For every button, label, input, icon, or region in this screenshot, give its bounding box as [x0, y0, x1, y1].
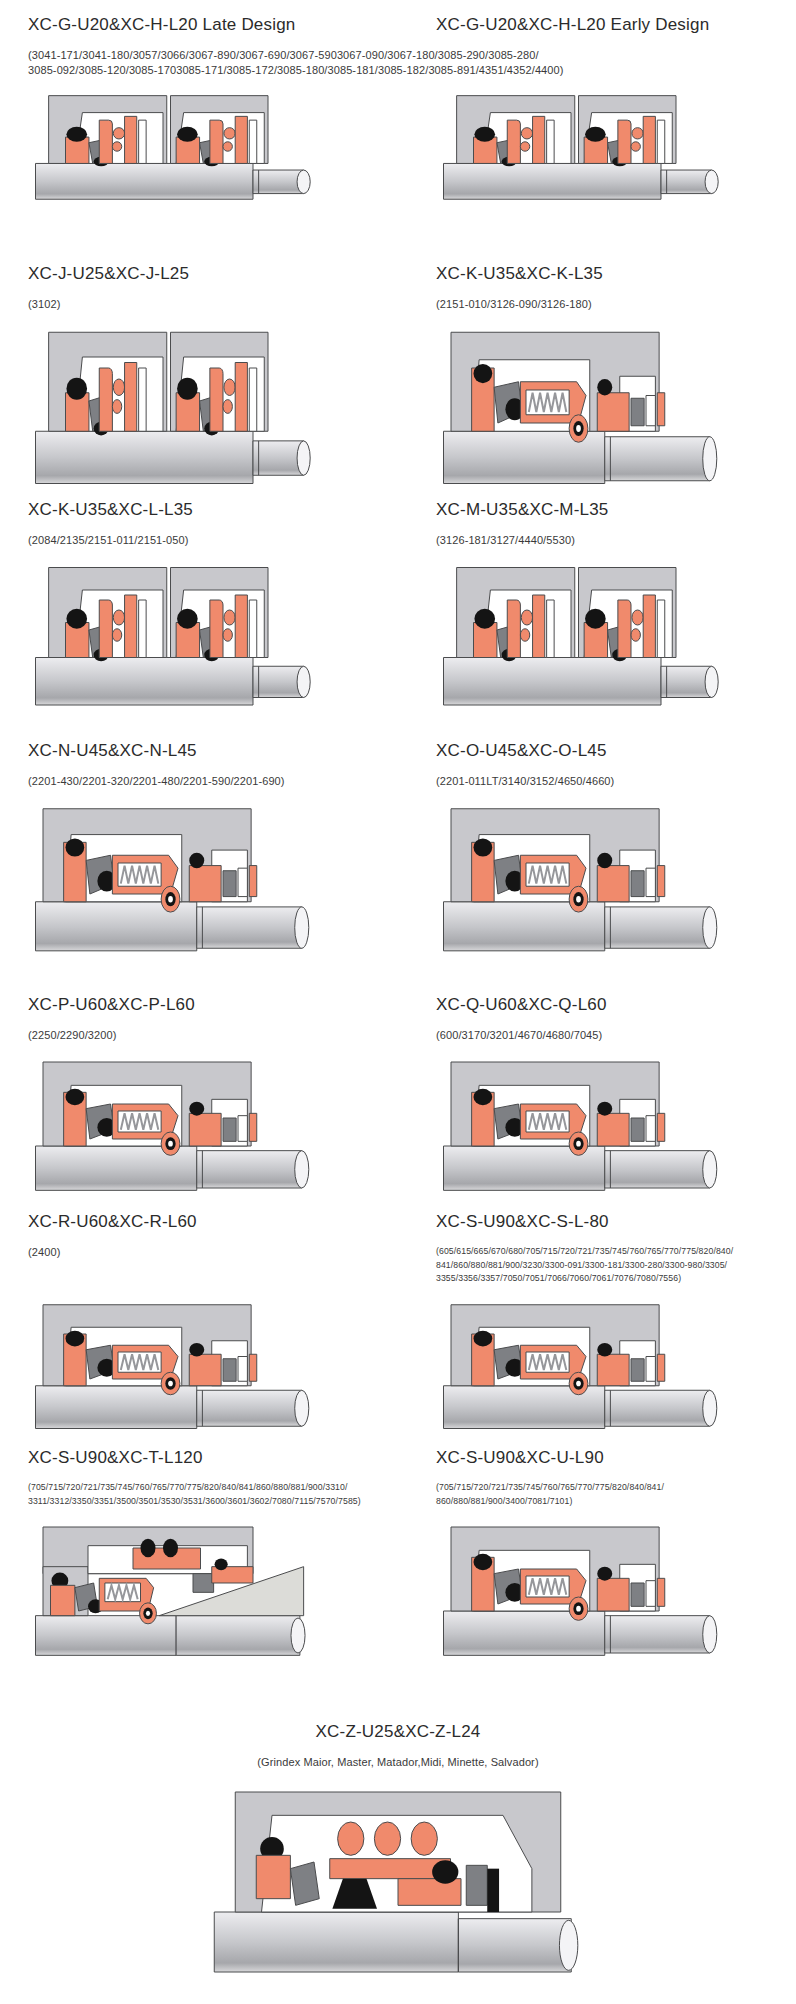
section-partnumbers: (2201-430/2201-320/2201-480/2201-590/220… [28, 774, 420, 789]
seal-cross-section-diagram [28, 801, 328, 956]
seal-cross-section-diagram [436, 1520, 736, 1660]
section-partnumbers: (2151-010/3126-090/3126-180) [436, 297, 768, 312]
section-partnumbers: (2201-011LT/3140/3152/4650/4660) [436, 774, 768, 789]
seal-cross-section-diagram [436, 560, 736, 710]
seal-cross-section-diagram [28, 1055, 328, 1195]
section-title: XC-J-U25&XC-J-L25 [28, 263, 420, 285]
seal-cross-section-diagram [28, 1298, 328, 1433]
section-partnumbers: (605/615/665/670/680/705/715/720/721/735… [436, 1245, 768, 1286]
row-n-o: XC-N-U45&XC-N-L45 (2201-430/2201-320/220… [28, 740, 768, 956]
section-title: XC-P-U60&XC-P-L60 [28, 994, 420, 1016]
section-title-g-late: XC-G-U20&XC-H-L20 Late Design [28, 14, 420, 36]
section-partnumbers: (600/3170/3201/4670/4680/7045) [436, 1028, 768, 1043]
section-title: XC-M-U35&XC-M-L35 [436, 499, 768, 521]
seal-cross-section-diagram [28, 560, 328, 710]
seal-cross-section-diagram [436, 801, 736, 956]
section-models: (Grindex Maior, Master, Matador,Midi, Mi… [28, 1755, 768, 1770]
seal-section-t-l120: XC-S-U90&XC-T-L120 (705/715/720/721/735/… [28, 1447, 420, 1660]
seal-section-r: XC-R-U60&XC-R-L60 (2400) [28, 1211, 420, 1433]
seal-cross-section-diagram [28, 324, 328, 489]
section-partnumbers: (705/715/720/721/735/745/760/765/770/775… [436, 1481, 768, 1508]
section-partnumbers: (2250/2290/3200) [28, 1028, 420, 1043]
seal-section-kl: XC-K-U35&XC-L-L35 (2084/2135/2151-011/21… [28, 499, 420, 710]
seal-section-p: XC-P-U60&XC-P-L60 (2250/2290/3200) [28, 994, 420, 1195]
seal-cross-section-diagram [420, 90, 736, 203]
seal-section-j: XC-J-U25&XC-J-L25 (3102) [28, 263, 420, 489]
section-title: XC-S-U90&XC-T-L120 [28, 1447, 420, 1469]
section-partnumbers-g: (3041-171/3041-180/3057/3066/3067-890/30… [28, 48, 768, 78]
section-title: XC-N-U45&XC-N-L45 [28, 740, 420, 762]
row-g-designs: XC-G-U20&XC-H-L20 Late Design XC-G-U20&X… [28, 14, 768, 203]
row-p-q: XC-P-U60&XC-P-L60 (2250/2290/3200) XC-Q-… [28, 994, 768, 1195]
seal-cross-section-diagram [436, 324, 736, 489]
seal-cross-section-diagram [188, 1782, 608, 1982]
section-partnumbers: (2084/2135/2151-011/2151-050) [28, 533, 420, 548]
section-z: XC-Z-U25&XC-Z-L24 (Grindex Maior, Master… [28, 1721, 768, 1982]
section-title: XC-Z-U25&XC-Z-L24 [28, 1721, 768, 1743]
section-title: XC-S-U90&XC-U-L90 [436, 1447, 768, 1469]
section-title: XC-S-U90&XC-S-L-80 [436, 1211, 768, 1233]
seal-cross-section-diagram [436, 1055, 736, 1195]
row-kl-m: XC-K-U35&XC-L-L35 (2084/2135/2151-011/21… [28, 499, 768, 710]
seal-section-q: XC-Q-U60&XC-Q-L60 (600/3170/3201/4670/46… [420, 994, 768, 1195]
seal-section-n: XC-N-U45&XC-N-L45 (2201-430/2201-320/220… [28, 740, 420, 956]
seal-section-s-l80: XC-S-U90&XC-S-L-80 (605/615/665/670/680/… [420, 1211, 768, 1433]
section-title: XC-K-U35&XC-K-L35 [436, 263, 768, 285]
row-r-s: XC-R-U60&XC-R-L60 (2400) XC-S-U90&XC-S-L… [28, 1211, 768, 1433]
section-partnumbers: (3102) [28, 297, 420, 312]
catalog-page: XC-G-U20&XC-H-L20 Late Design XC-G-U20&X… [0, 0, 796, 1982]
section-title: XC-O-U45&XC-O-L45 [436, 740, 768, 762]
seal-cross-section-diagram [28, 90, 328, 203]
section-title-g-early: XC-G-U20&XC-H-L20 Early Design [420, 14, 768, 36]
seal-section-u-l90: XC-S-U90&XC-U-L90 (705/715/720/721/735/7… [420, 1447, 768, 1660]
section-partnumbers: (3126-181/3127/4440/5530) [436, 533, 768, 548]
row-t-u: XC-S-U90&XC-T-L120 (705/715/720/721/735/… [28, 1447, 768, 1660]
seal-cross-section-diagram [436, 1298, 736, 1433]
seal-cross-section-diagram [28, 1520, 328, 1660]
section-title: XC-R-U60&XC-R-L60 [28, 1211, 420, 1233]
section-partnumbers: (2400) [28, 1245, 420, 1286]
row-j-k: XC-J-U25&XC-J-L25 (3102) XC-K-U35&XC-K-L… [28, 263, 768, 489]
section-title: XC-Q-U60&XC-Q-L60 [436, 994, 768, 1016]
seal-section-o: XC-O-U45&XC-O-L45 (2201-011LT/3140/3152/… [420, 740, 768, 956]
section-title: XC-K-U35&XC-L-L35 [28, 499, 420, 521]
seal-section-k: XC-K-U35&XC-K-L35 (2151-010/3126-090/312… [420, 263, 768, 489]
seal-section-m: XC-M-U35&XC-M-L35 (3126-181/3127/4440/55… [420, 499, 768, 710]
section-partnumbers: (705/715/720/721/735/745/760/765/770/775… [28, 1481, 420, 1508]
